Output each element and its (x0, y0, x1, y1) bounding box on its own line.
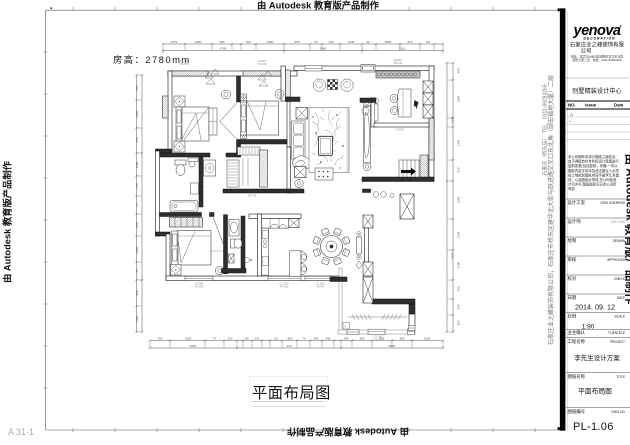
svg-text:2340: 2340 (451, 116, 455, 123)
svg-text:860: 860 (288, 337, 293, 341)
svg-text:346: 346 (314, 337, 319, 341)
svg-text:石家庄业之峰装饰有限: 石家庄业之峰装饰有限 (570, 41, 625, 49)
svg-text:1596: 1596 (424, 337, 431, 341)
svg-text:平面布局图: 平面布局图 (578, 387, 612, 396)
svg-text:750: 750 (457, 286, 461, 291)
svg-text:图纸内容字体涉及违法建议人必须: 图纸内容字体涉及违法建议人必须 (568, 168, 619, 173)
svg-text:2660: 2660 (135, 110, 139, 117)
svg-text:141: 141 (255, 337, 260, 341)
svg-text:图纸编号: 图纸编号 (568, 408, 586, 415)
svg-text:CHECK: CHECK (614, 277, 626, 281)
svg-text:PL-1.06: PL-1.06 (573, 421, 614, 433)
svg-text:↑: ↑ (344, 324, 346, 329)
svg-text:900: 900 (135, 222, 139, 227)
svg-text:才可许可.图纸版权归日本公司所: 才可许可.图纸版权归日本公司所 (568, 182, 617, 187)
svg-text:4700: 4700 (220, 47, 227, 51)
svg-text:3590: 3590 (320, 47, 327, 51)
svg-text:346: 346 (344, 337, 349, 341)
svg-text:450: 450 (457, 68, 461, 73)
svg-text:74: 74 (302, 337, 306, 341)
svg-text:74: 74 (212, 337, 216, 341)
svg-text:2250: 2250 (195, 40, 202, 44)
svg-text:1240: 1240 (348, 40, 355, 44)
svg-text:2250: 2250 (135, 246, 139, 253)
svg-text:DRAWN: DRAWN (613, 239, 626, 243)
svg-text:审核: 审核 (568, 256, 577, 263)
svg-text:24: 24 (135, 203, 139, 207)
svg-text:石家庄（桥东店） TEL 0311-89293265: 石家庄（桥东店） TEL 0311-89293265 (542, 84, 549, 175)
svg-text:346: 346 (326, 337, 331, 341)
svg-text:本公司拥有本设计图纸之版权及: 本公司拥有本设计图纸之版权及 (568, 154, 616, 159)
svg-text:DATE: DATE (617, 296, 625, 300)
svg-text:2997: 2997 (190, 344, 197, 348)
svg-text:263.1046: 263.1046 (611, 220, 625, 224)
svg-text:980: 980 (219, 40, 224, 44)
svg-text:756: 756 (158, 337, 163, 341)
svg-text:1190: 1190 (135, 161, 139, 168)
svg-text:910: 910 (457, 167, 461, 172)
svg-text:873: 873 (407, 40, 412, 44)
svg-text:1300: 1300 (135, 315, 139, 322)
svg-text:2050: 2050 (385, 40, 392, 44)
svg-text:TK-00: TK-00 (374, 338, 382, 342)
svg-text:×: × (569, 120, 571, 124)
svg-text:68: 68 (135, 269, 139, 273)
svg-text:150: 150 (328, 40, 333, 44)
svg-text:TK-282: TK-282 (194, 285, 204, 289)
svg-text:62: 62 (274, 337, 278, 341)
svg-text:DWG NO: DWG NO (612, 410, 626, 414)
svg-text:A 31·1: A 31·1 (8, 427, 34, 437)
svg-text:Date: Date (614, 103, 624, 108)
svg-text:111: 111 (426, 40, 431, 44)
svg-text:900: 900 (135, 290, 139, 295)
svg-text:NO.: NO. (568, 103, 576, 108)
svg-text:340: 340 (286, 344, 291, 348)
svg-text:945: 945 (400, 337, 405, 341)
svg-text:其不得擅自将专利权设计意图进行: 其不得擅自将专利权设计意图进行 (568, 159, 619, 164)
svg-text:23: 23 (314, 40, 318, 44)
svg-text:TK-760: TK-760 (179, 62, 189, 66)
svg-text:TLIENTELE: TLIENTELE (608, 331, 625, 335)
svg-text:TK-282: TK-282 (257, 62, 267, 66)
svg-text:150: 150 (135, 137, 139, 142)
svg-text:TK-282: TK-282 (279, 285, 289, 289)
svg-text:颐宏大厦二层 电话：0311-89293265: 颐宏大厦二层 电话：0311-89293265 (573, 57, 622, 62)
svg-text:310: 310 (228, 337, 233, 341)
svg-text:Issue: Issue (585, 103, 597, 108)
svg-text:1:90: 1:90 (582, 324, 595, 331)
svg-text:D E C O R A T I O N: D E C O R A T I O N (583, 37, 615, 41)
svg-text:RK-00: RK-00 (394, 61, 402, 65)
svg-text:®: ® (619, 24, 622, 29)
svg-text:由 Autodesk 教育版产品制作: 由 Autodesk 教育版产品制作 (286, 427, 409, 438)
svg-text:设计师: 设计师 (568, 218, 582, 225)
svg-text:4830: 4830 (389, 344, 396, 348)
svg-text:李先生设计方案: 李先生设计方案 (574, 353, 620, 362)
svg-text:TK-45: TK-45 (316, 285, 324, 289)
svg-text:别墅精装设计中心: 别墅精装设计中心 (572, 87, 622, 95)
svg-text:工程名称: 工程名称 (568, 338, 586, 345)
svg-text:740: 740 (135, 183, 139, 188)
svg-text:450: 450 (457, 320, 461, 325)
svg-text:1330: 1330 (457, 139, 461, 146)
svg-text:设、以及图纸必须经.总公司批准: 设、以及图纸必须经.总公司批准 (568, 177, 617, 182)
svg-text:1580: 1580 (457, 196, 461, 203)
svg-text:1290: 1290 (185, 337, 192, 341)
svg-text:CAD8: CAD8 (396, 128, 404, 132)
svg-text:由 Autodesk 教育版产品制作: 由 Autodesk 教育版产品制作 (624, 154, 630, 305)
svg-text:由 Autodesk 教育版产品制作: 由 Autodesk 教育版产品制作 (257, 0, 380, 11)
svg-text:在工地规划图纸内容手册学艺术建: 在工地规划图纸内容手册学艺术建 (568, 172, 619, 177)
svg-text:SCALE: SCALE (615, 315, 625, 319)
svg-text:1180: 1180 (457, 261, 461, 268)
svg-text:900: 900 (135, 85, 139, 90)
svg-text:1960: 1960 (457, 95, 461, 102)
svg-text:905: 905 (294, 40, 299, 44)
svg-text:150: 150 (245, 40, 250, 44)
svg-text:66: 66 (245, 337, 249, 341)
svg-text:绘制: 绘制 (568, 237, 577, 244)
svg-text:2014. 09. 12: 2014. 09. 12 (575, 303, 615, 312)
svg-text:由 Autodesk 教育版产品制作: 由 Autodesk 教育版产品制作 (2, 160, 13, 283)
svg-text:比例: 比例 (568, 313, 577, 320)
svg-text:1575: 1575 (171, 40, 178, 44)
svg-text:2960: 2960 (451, 252, 455, 259)
svg-text:1265: 1265 (457, 231, 461, 238)
svg-text:设计工室: 设计工室 (568, 199, 586, 206)
svg-text:2360: 2360 (267, 40, 274, 44)
svg-text:有权.: 有权. (568, 186, 576, 191)
svg-text:29: 29 (366, 40, 370, 44)
svg-text:TITLE: TITLE (616, 375, 625, 379)
svg-text:校对: 校对 (568, 275, 577, 282)
svg-text:DESI GNERHOS: DESI GNERHOS (601, 201, 625, 205)
svg-text:平面布局图: 平面布局图 (252, 385, 331, 402)
svg-text:图纸名称: 图纸名称 (568, 373, 586, 380)
svg-text:PROJECT: PROJECT (610, 340, 625, 344)
svg-text:640: 640 (457, 304, 461, 309)
svg-text:APPROVED: APPROVED (607, 258, 625, 262)
svg-text:GD 02: GD 02 (248, 194, 257, 198)
svg-text:复制变更(包括复制、传播.一切以: 复制变更(包括复制、传播.一切以 (568, 163, 618, 168)
svg-text:945: 945 (360, 337, 365, 341)
svg-text:公司: 公司 (581, 48, 592, 55)
svg-text:3110: 3110 (399, 47, 406, 51)
